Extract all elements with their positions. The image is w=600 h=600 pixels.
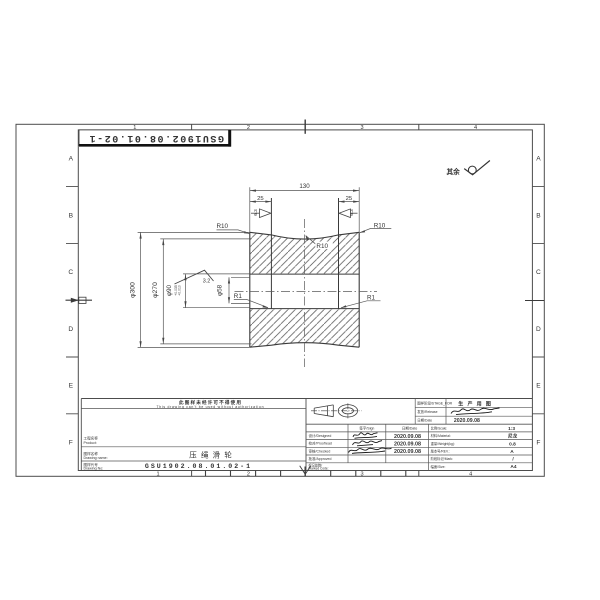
svg-text:φ58: φ58	[217, 284, 224, 296]
svg-text:2020.09.08: 2020.09.08	[454, 418, 480, 424]
svg-text:重量/Weight(kg):: 重量/Weight(kg):	[431, 441, 455, 446]
svg-text:R10: R10	[316, 243, 328, 250]
svg-text:4: 4	[469, 472, 472, 478]
svg-text:批准/Approved: 批准/Approved	[309, 456, 332, 461]
svg-text:φ90: φ90	[166, 284, 173, 296]
svg-text:GSU1902.08.01.02-1: GSU1902.08.01.02-1	[88, 132, 224, 143]
svg-text:幅面/Size:: 幅面/Size:	[431, 464, 446, 469]
svg-text:25: 25	[346, 196, 353, 202]
svg-text:签字/Sign: 签字/Sign	[359, 425, 374, 430]
svg-text:1:3: 1:3	[508, 426, 515, 432]
svg-text:Drawing name:: Drawing name:	[84, 456, 108, 460]
svg-text:日期/Date: 日期/Date	[417, 418, 432, 423]
svg-text:C: C	[68, 269, 73, 276]
svg-text:A: A	[536, 156, 541, 163]
svg-text:D: D	[536, 326, 541, 333]
svg-text:E: E	[69, 383, 74, 390]
svg-text:2: 2	[247, 472, 250, 478]
svg-text:B: B	[69, 212, 74, 219]
svg-text:F: F	[69, 440, 73, 447]
svg-text:压绳滑轮: 压绳滑轮	[189, 450, 236, 460]
svg-text:材料/Material:: 材料/Material:	[431, 433, 451, 438]
svg-text:This drawing can't be used wit: This drawing can't be used without autho…	[157, 405, 264, 409]
svg-text:Drawing No:: Drawing No:	[84, 467, 104, 471]
svg-text:生产用图: 生产用图	[458, 400, 495, 407]
svg-text:A: A	[510, 449, 514, 455]
svg-text:φ270: φ270	[152, 282, 159, 298]
svg-text:φ300: φ300	[130, 282, 137, 298]
svg-text:+0.010: +0.010	[177, 285, 181, 296]
svg-text:D: D	[68, 326, 73, 333]
svg-text:图样阶段/STAGE_FOR: 图样阶段/STAGE_FOR	[417, 400, 452, 405]
svg-text:2: 2	[247, 125, 250, 131]
svg-text:校对/Proofread: 校对/Proofread	[309, 441, 332, 446]
svg-text:4: 4	[474, 125, 477, 131]
svg-text:比例/Scale:: 比例/Scale:	[431, 425, 448, 430]
svg-text:A4: A4	[510, 464, 516, 470]
svg-text:A: A	[69, 156, 74, 163]
svg-text:尼龙: 尼龙	[508, 433, 518, 440]
svg-text:2020.09.08: 2020.09.08	[394, 449, 421, 455]
svg-text:Product:: Product:	[84, 441, 97, 445]
svg-text:25: 25	[257, 196, 264, 202]
svg-text:其余: 其余	[447, 167, 461, 176]
svg-text:6.3: 6.3	[253, 209, 258, 216]
svg-text:0.8: 0.8	[509, 441, 516, 447]
svg-text:阶段标记/Mark:: 阶段标记/Mark:	[431, 456, 453, 461]
svg-text:3: 3	[360, 125, 363, 131]
svg-text:GSU1902.08.01.02-1: GSU1902.08.01.02-1	[145, 463, 252, 470]
svg-text:3: 3	[360, 472, 363, 478]
svg-text:6.3: 6.3	[349, 209, 354, 216]
svg-text:130: 130	[299, 183, 310, 190]
svg-text:日期/Date: 日期/Date	[402, 425, 417, 430]
svg-text:工程名称: 工程名称	[84, 436, 99, 441]
svg-text:2020.09.08: 2020.09.08	[394, 442, 421, 448]
svg-text:发放/Release: 发放/Release	[417, 409, 437, 414]
svg-text:Marked Code:: Marked Code:	[309, 467, 329, 471]
svg-text:3.2: 3.2	[203, 279, 211, 285]
svg-text:版本号/REV.:: 版本号/REV.:	[431, 449, 450, 454]
svg-text:B: B	[536, 212, 541, 219]
svg-text:设计/Designed: 设计/Designed	[309, 433, 332, 438]
svg-text:审核/Checked: 审核/Checked	[309, 448, 331, 453]
svg-text:F: F	[536, 440, 540, 447]
svg-text:1: 1	[156, 472, 159, 478]
svg-text:R10: R10	[217, 223, 229, 230]
svg-text:C: C	[536, 269, 541, 276]
svg-text:E: E	[536, 383, 541, 390]
svg-text:2020.09.08: 2020.09.08	[394, 434, 421, 440]
